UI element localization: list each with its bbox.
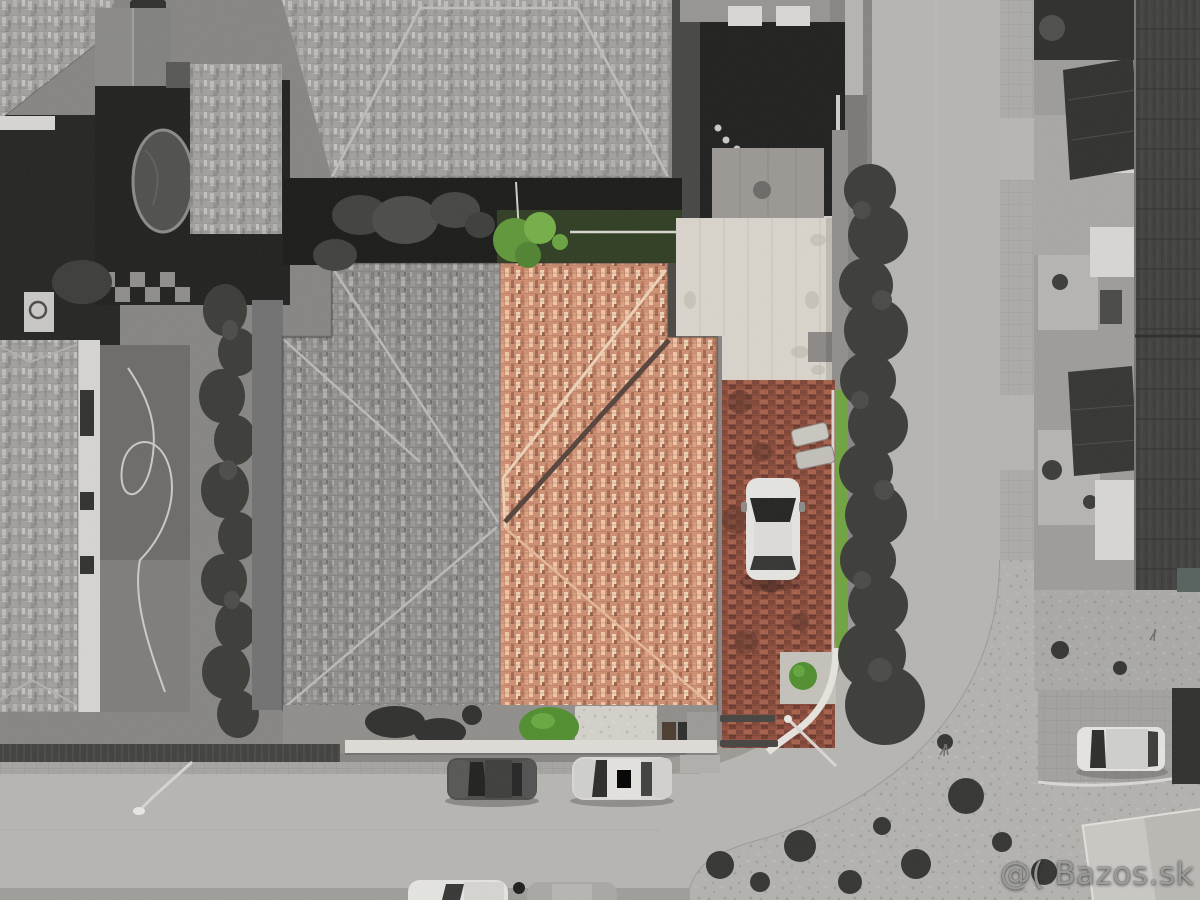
listing-photo: @( Bazos.sk <box>0 0 1200 900</box>
aerial-photo-canvas <box>0 0 1200 900</box>
film-grain-overlay <box>0 0 1200 900</box>
